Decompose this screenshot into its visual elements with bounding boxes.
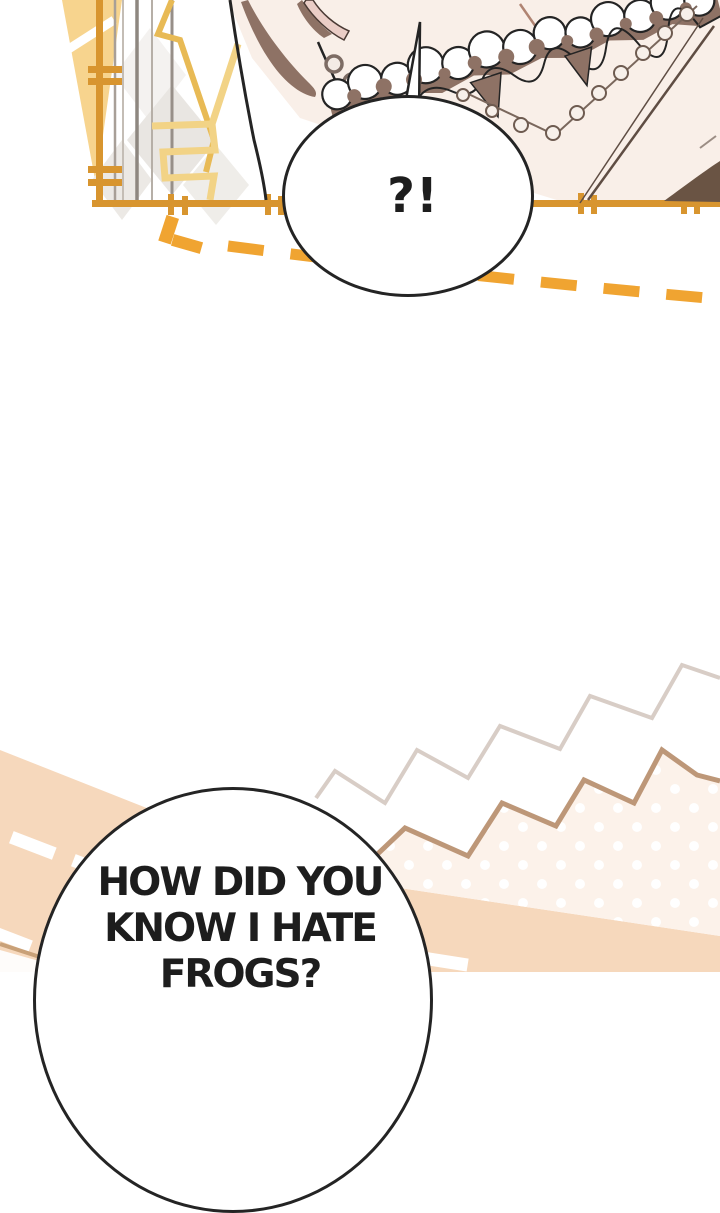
- speech-line-1: HOW DID YOU: [58, 860, 422, 906]
- decor-zigzag-cream-diagonal: [212, 44, 238, 124]
- speech-bubble-top-text: ?!: [282, 95, 534, 297]
- speech-bubble-bottom-text: HOW DID YOU KNOW I HATE FROGS?: [58, 860, 422, 998]
- exclamation-text: ?!: [387, 168, 439, 224]
- comic-page: ?! HOW DID YOU KNOW I HATE FROGS?: [0, 0, 720, 972]
- speech-line-2: KNOW I HATE: [58, 906, 422, 952]
- speech-line-3: FROGS?: [58, 952, 422, 998]
- speech-bubble-bottom: [33, 787, 433, 1213]
